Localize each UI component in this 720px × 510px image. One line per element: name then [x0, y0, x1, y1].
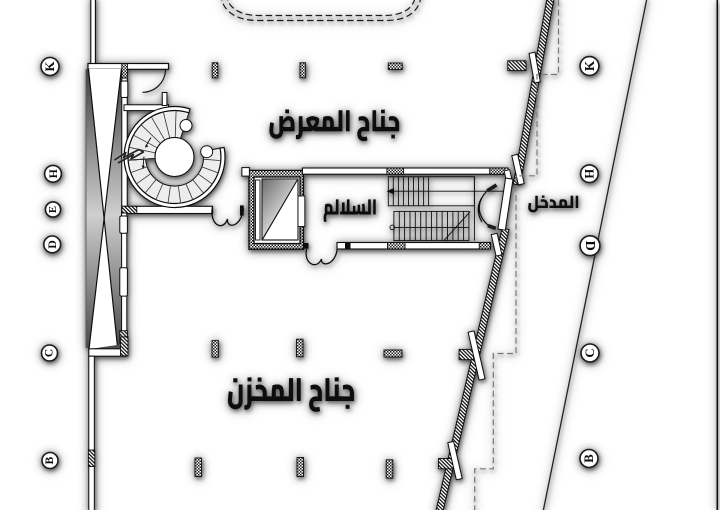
svg-text:K: K [43, 61, 57, 71]
svg-text:B: B [582, 454, 596, 463]
svg-text:H: H [46, 168, 60, 178]
svg-text:H: H [582, 169, 596, 179]
svg-text:C: C [44, 349, 56, 357]
svg-text:E: E [47, 206, 59, 213]
svg-text:C: C [583, 348, 597, 357]
svg-text:D: D [45, 240, 59, 249]
svg-text:D: D [582, 241, 598, 251]
svg-text:B: B [44, 456, 56, 464]
svg-text:K: K [582, 60, 597, 71]
